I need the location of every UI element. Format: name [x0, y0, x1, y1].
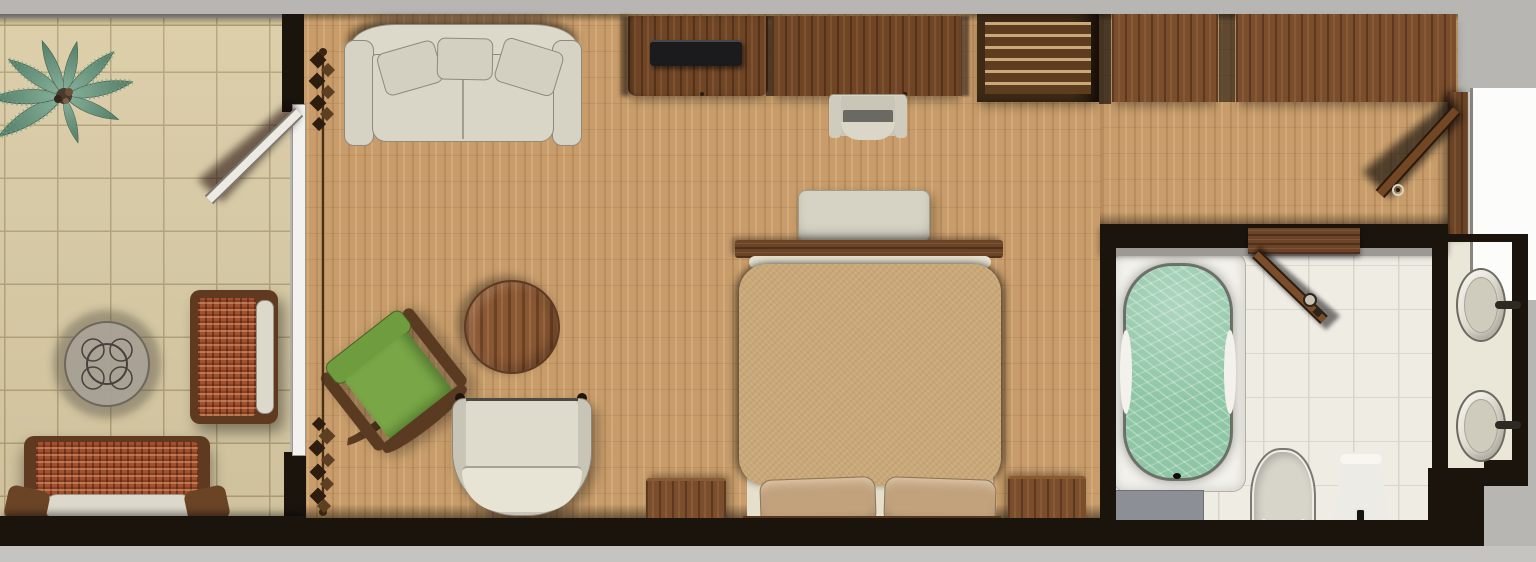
tub-chair-top-edge [466, 398, 578, 401]
bedroom-wall-bottom [300, 518, 1112, 546]
wicker-armchair-back [198, 298, 256, 416]
bottom-margin-strip [0, 546, 1536, 562]
sink-top-basin [1464, 277, 1498, 333]
bathroom-wall-left [1100, 224, 1116, 548]
desk-chair-arm-left [829, 96, 841, 138]
coffee-table [464, 280, 560, 374]
sink-bottom-basin [1464, 399, 1498, 453]
wicker-sofa-back [36, 442, 198, 498]
faucet-top [1495, 301, 1521, 309]
terrace-wall-right-upper [282, 14, 304, 112]
slatted-shelf-unit [977, 14, 1099, 102]
bathtub-pinch-right [1224, 330, 1236, 414]
bathroom-door-lintel [1248, 228, 1360, 254]
bathtub-water [1126, 266, 1230, 478]
vanity-wall-bottom [1484, 460, 1528, 486]
bathtub-drain [1173, 473, 1181, 479]
tub-chair-front-band [462, 466, 582, 512]
tv-flatscreen [650, 40, 742, 66]
bath-mat [1114, 490, 1204, 524]
wardrobe-right [1236, 14, 1456, 102]
wardrobe-gap-left [1099, 14, 1111, 104]
wardrobe-left [1112, 14, 1218, 102]
bed-spread [739, 264, 1001, 486]
wardrobe-gap-mid [1219, 14, 1235, 102]
wicker-armchair [190, 290, 278, 424]
desk-chair-arm-right [895, 96, 907, 138]
bed-bench [798, 190, 930, 242]
writing-desk [772, 16, 962, 96]
vanity-wall-right [1512, 234, 1528, 478]
shelf-unit-gap-shadow [961, 16, 969, 96]
entry-wall-stub [1448, 92, 1468, 238]
bidet-rim [1340, 454, 1382, 464]
terrace-top-shadow [0, 14, 290, 24]
bathroom-wall-bottom [1100, 520, 1448, 548]
sofa-pillow-center [437, 38, 494, 81]
wicker-sofa [24, 436, 210, 524]
vanity-corner-block [1428, 468, 1484, 548]
toilet [1252, 450, 1314, 530]
bathtub-pinch-left [1120, 330, 1132, 414]
faucet-bottom [1495, 421, 1521, 429]
shelf-slats [985, 22, 1091, 94]
desk-pull-left [700, 92, 704, 96]
wicker-armchair-cushion [256, 300, 274, 414]
sofa-arm-left [344, 40, 374, 146]
floor-plan-canvas [0, 0, 1536, 562]
sliding-door-frame [292, 104, 306, 456]
terrace-wall-bottom [0, 516, 306, 546]
